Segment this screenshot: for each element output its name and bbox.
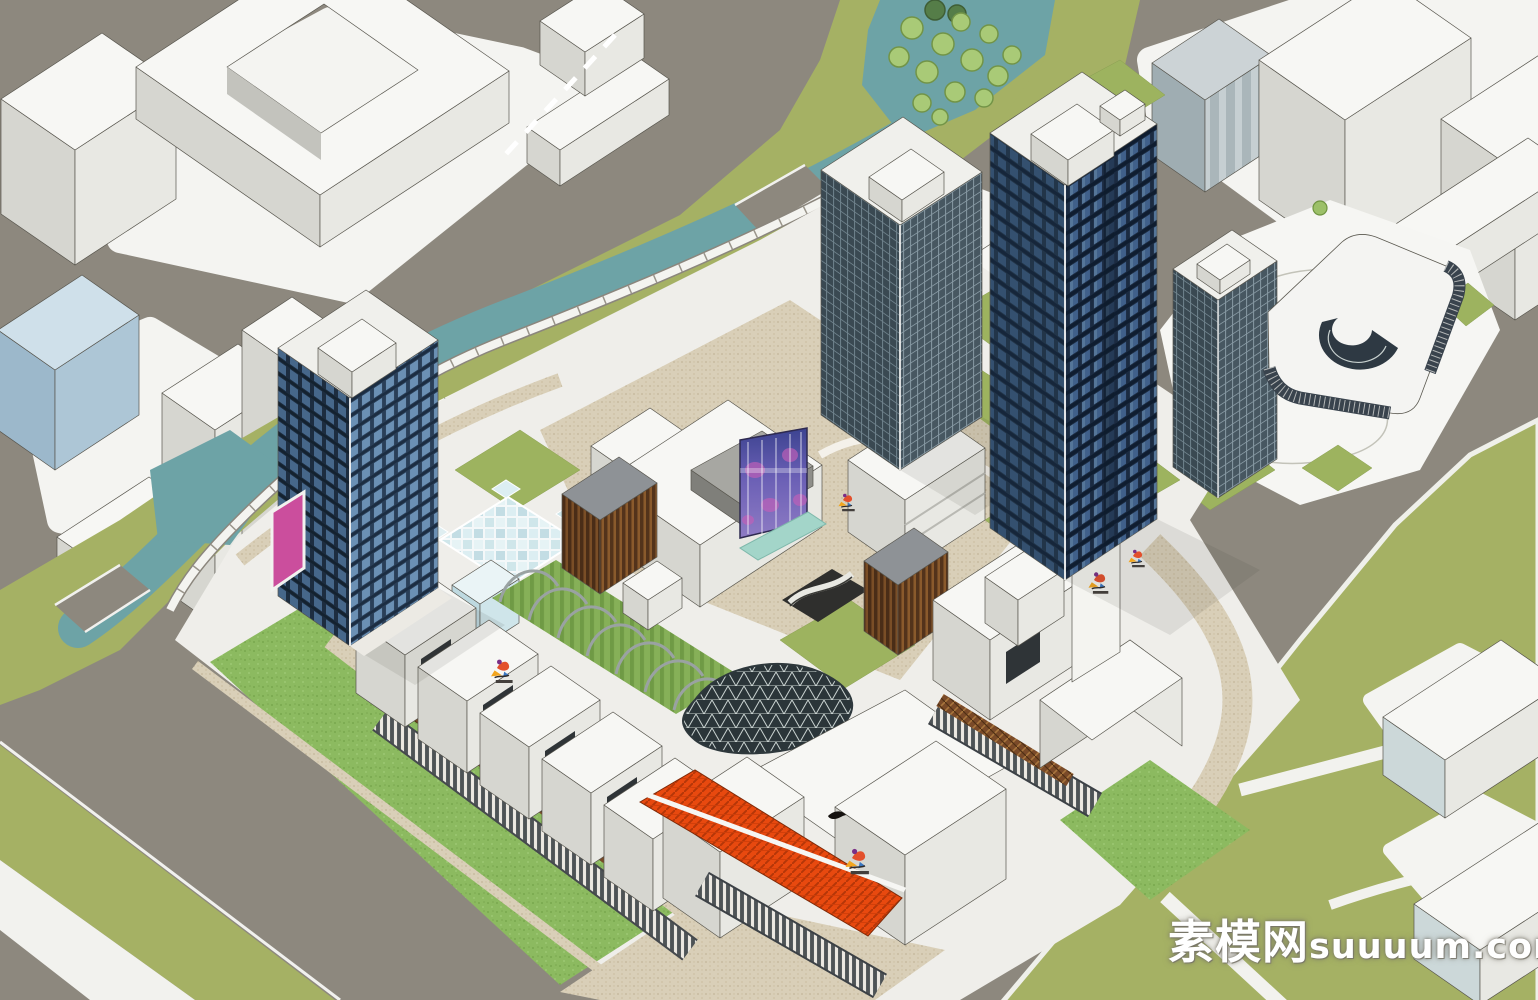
tower-southwest [272,290,452,656]
watermark: 素模网suuuum.com [1168,906,1538,972]
tower-rear [821,117,982,470]
tower-main [990,72,1157,580]
watermark-site-url: suuuum.com [1309,927,1538,967]
tower-mid [1173,230,1277,498]
watermark-site-name: 素模网 [1168,915,1309,969]
architectural-render: 素模网suuuum.com [0,0,1538,1000]
